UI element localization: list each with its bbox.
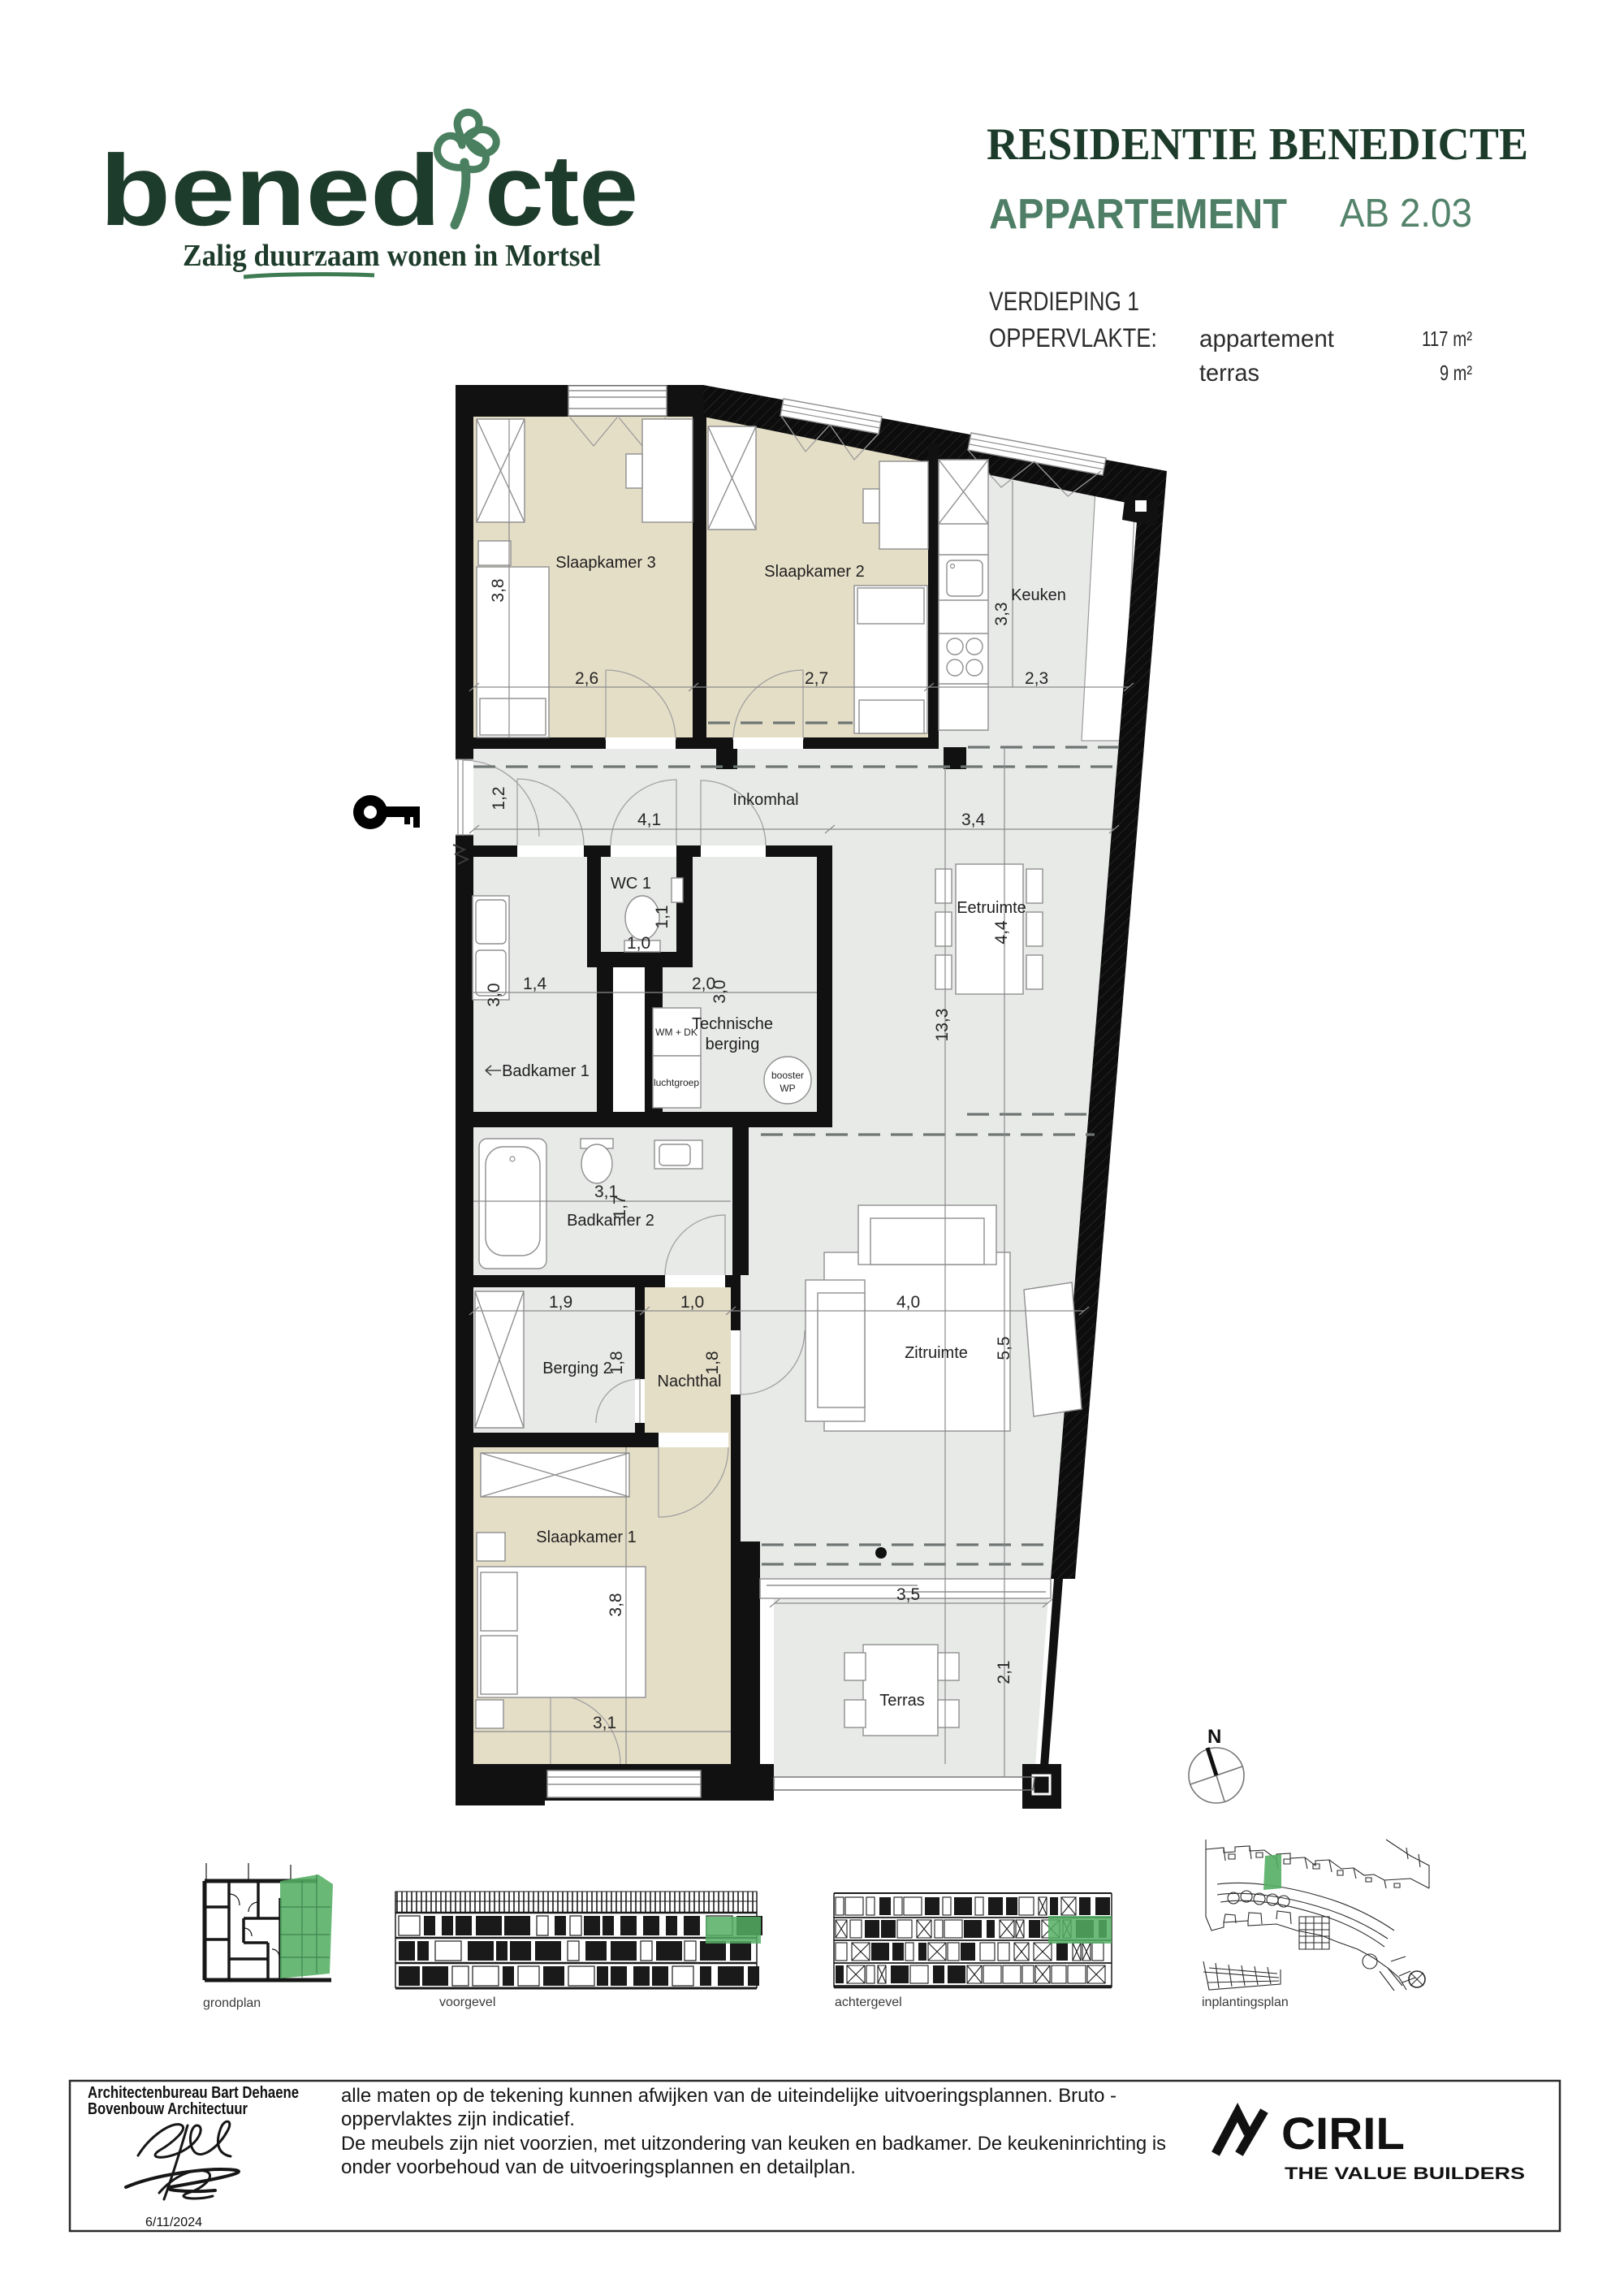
svg-text:2,3: 2,3	[1025, 669, 1048, 688]
svg-text:2,1: 2,1	[995, 1660, 1013, 1684]
svg-text:berging: berging	[706, 1036, 760, 1053]
svg-text:Slaapkamer 3: Slaapkamer 3	[555, 554, 655, 572]
svg-text:Architectenbureau Bart Dehaene: Architectenbureau Bart Dehaene	[88, 2084, 299, 2102]
svg-text:1,9: 1,9	[549, 1293, 572, 1312]
svg-text:1,4: 1,4	[523, 975, 547, 993]
svg-text:3,1: 3,1	[593, 1714, 616, 1732]
svg-text:3,5: 3,5	[896, 1585, 920, 1604]
svg-text:3,0: 3,0	[485, 983, 503, 1006]
svg-text:5,5: 5,5	[995, 1336, 1013, 1360]
svg-text:1,0: 1,0	[680, 1293, 704, 1312]
svg-text:3,4: 3,4	[961, 811, 986, 829]
svg-text:voorgevel: voorgevel	[439, 1995, 495, 2009]
svg-text:OPPERVLAKTE:: OPPERVLAKTE:	[989, 323, 1157, 352]
svg-text:VERDIEPING 1: VERDIEPING 1	[989, 287, 1139, 316]
svg-text:WP: WP	[780, 1083, 795, 1094]
svg-text:Eetruimte: Eetruimte	[957, 899, 1026, 917]
svg-text:Badkamer 2: Badkamer 2	[567, 1212, 654, 1230]
svg-text:1,2: 1,2	[490, 786, 508, 810]
svg-text:1,0: 1,0	[627, 934, 650, 953]
svg-text:Zalig duurzaam wonen in Mortse: Zalig duurzaam wonen in Mortsel	[183, 239, 601, 273]
svg-text:THE VALUE BUILDERS: THE VALUE BUILDERS	[1285, 2164, 1525, 2183]
svg-text:inplantingsplan: inplantingsplan	[1202, 1995, 1289, 2009]
svg-text:Slaapkamer 2: Slaapkamer 2	[764, 563, 864, 581]
svg-text:1,1: 1,1	[653, 905, 672, 928]
svg-text:9 m²: 9 m²	[1440, 361, 1472, 385]
svg-text:4,1: 4,1	[637, 811, 661, 829]
svg-text:luchtgroep: luchtgroep	[654, 1077, 699, 1088]
svg-text:3,3: 3,3	[992, 602, 1011, 625]
svg-text:APPARTEMENT: APPARTEMENT	[989, 191, 1287, 238]
svg-text:cte: cte	[485, 135, 638, 247]
svg-text:4,0: 4,0	[896, 1293, 920, 1312]
svg-text:2,7: 2,7	[805, 669, 828, 688]
svg-text:Inkomhal: Inkomhal	[732, 791, 798, 809]
svg-text:3,8: 3,8	[607, 1593, 625, 1616]
svg-text:3,8: 3,8	[489, 578, 508, 602]
svg-text:alle maten op de tekening kunn: alle maten op de tekening kunnen afwijke…	[341, 2085, 1116, 2107]
svg-text:terras: terras	[1199, 360, 1259, 387]
svg-text:Bovenbouw Architectuur: Bovenbouw Architectuur	[88, 2100, 248, 2118]
svg-text:booster: booster	[771, 1070, 804, 1081]
svg-text:RESIDENTIE BENEDICTE: RESIDENTIE BENEDICTE	[987, 119, 1528, 170]
svg-text:CIRIL: CIRIL	[1281, 2108, 1405, 2159]
svg-text:onder voorbehoud van de uitvoe: onder voorbehoud van de uitvoeringsplann…	[341, 2156, 856, 2178]
svg-text:AB 2.03: AB 2.03	[1340, 192, 1472, 236]
svg-text:Slaapkamer 1: Slaapkamer 1	[536, 1529, 636, 1546]
svg-text:2,6: 2,6	[575, 669, 598, 688]
svg-text:Technische: Technische	[692, 1015, 773, 1033]
svg-text:Berging 2: Berging 2	[542, 1360, 612, 1377]
svg-text:Badkamer 1: Badkamer 1	[502, 1062, 590, 1080]
svg-text:bened: bened	[100, 135, 441, 247]
svg-text:oppervlaktes zijn indicatief.: oppervlaktes zijn indicatief.	[341, 2108, 575, 2130]
svg-text:grondplan: grondplan	[203, 1996, 261, 2010]
svg-text:achtergevel: achtergevel	[835, 1995, 902, 2009]
svg-text:117 m²: 117 m²	[1422, 326, 1472, 351]
svg-text:Nachthal: Nachthal	[658, 1373, 722, 1390]
svg-text:N: N	[1207, 1726, 1221, 1748]
svg-text:appartement: appartement	[1199, 326, 1335, 352]
svg-text:Terras: Terras	[879, 1692, 925, 1710]
svg-text:4,4: 4,4	[992, 920, 1011, 945]
svg-text:De meubels zijn niet voorzien,: De meubels zijn niet voorzien, met uitzo…	[341, 2133, 1166, 2155]
svg-text:WM + DK: WM + DK	[655, 1027, 698, 1038]
svg-text:3,0: 3,0	[710, 979, 729, 1003]
svg-text:Keuken: Keuken	[1011, 586, 1066, 604]
svg-text:1,8: 1,8	[703, 1351, 722, 1374]
svg-text:6/11/2024: 6/11/2024	[145, 2216, 202, 2229]
svg-text:13,3: 13,3	[933, 1009, 952, 1042]
svg-text:WC 1: WC 1	[611, 875, 651, 893]
svg-text:Zitruimte: Zitruimte	[905, 1344, 968, 1362]
